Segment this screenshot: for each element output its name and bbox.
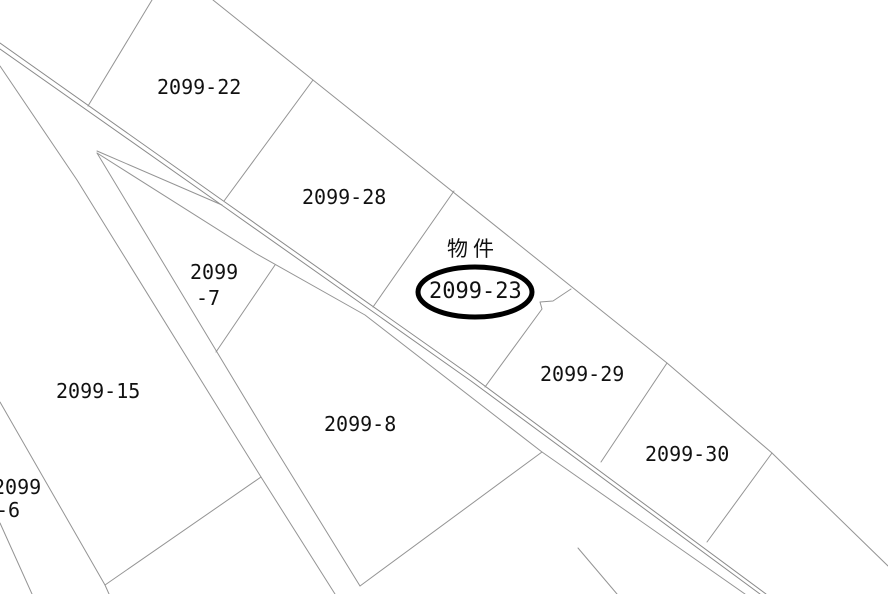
boundary-2099-8-south [360, 452, 542, 586]
boundary-2099-30-east [707, 453, 772, 542]
parcel-label-2099-29: 2099-29 [540, 363, 624, 385]
road-strip-upper-edge [97, 151, 222, 205]
parcel-label-2099-28: 2099-28 [302, 186, 386, 208]
parcel-label-2099-8: 2099-8 [324, 413, 396, 435]
parcel-label-2099-22: 2099-22 [157, 76, 241, 98]
parcel-label-2099-30: 2099-30 [645, 443, 729, 465]
boundary-2099-15-south [105, 477, 261, 585]
steep-lane-right-edge [97, 153, 360, 586]
parcel-label-2099-7-line1: 2099 [190, 261, 238, 283]
boundary-2099-6-southwest [0, 523, 32, 594]
road-strip-lower-edge [97, 153, 745, 594]
boundary-stub-south-of-road [578, 548, 617, 594]
boundary-2099-22-west [88, 0, 152, 106]
steep-lane-left-edge [0, 66, 335, 594]
parcel-label-2099-15: 2099-15 [56, 380, 140, 402]
parcel-label-2099-7-line2: -7 [196, 287, 220, 309]
parcel-label-2099-23-highlighted: 2099-23 [429, 281, 522, 303]
parcel-label-2099-6-line1: 2099 [0, 476, 41, 498]
road-double-line [0, 43, 766, 594]
cadastral-map: 2099-22 2099-28 物件 2099-23 2099-29 2099-… [0, 0, 888, 594]
property-marker-label: 物件 [447, 233, 499, 263]
northeast-outer-boundary [213, 0, 888, 566]
parcel-label-2099-6-line2: -6 [0, 499, 20, 521]
road-edge-lower [0, 49, 760, 594]
